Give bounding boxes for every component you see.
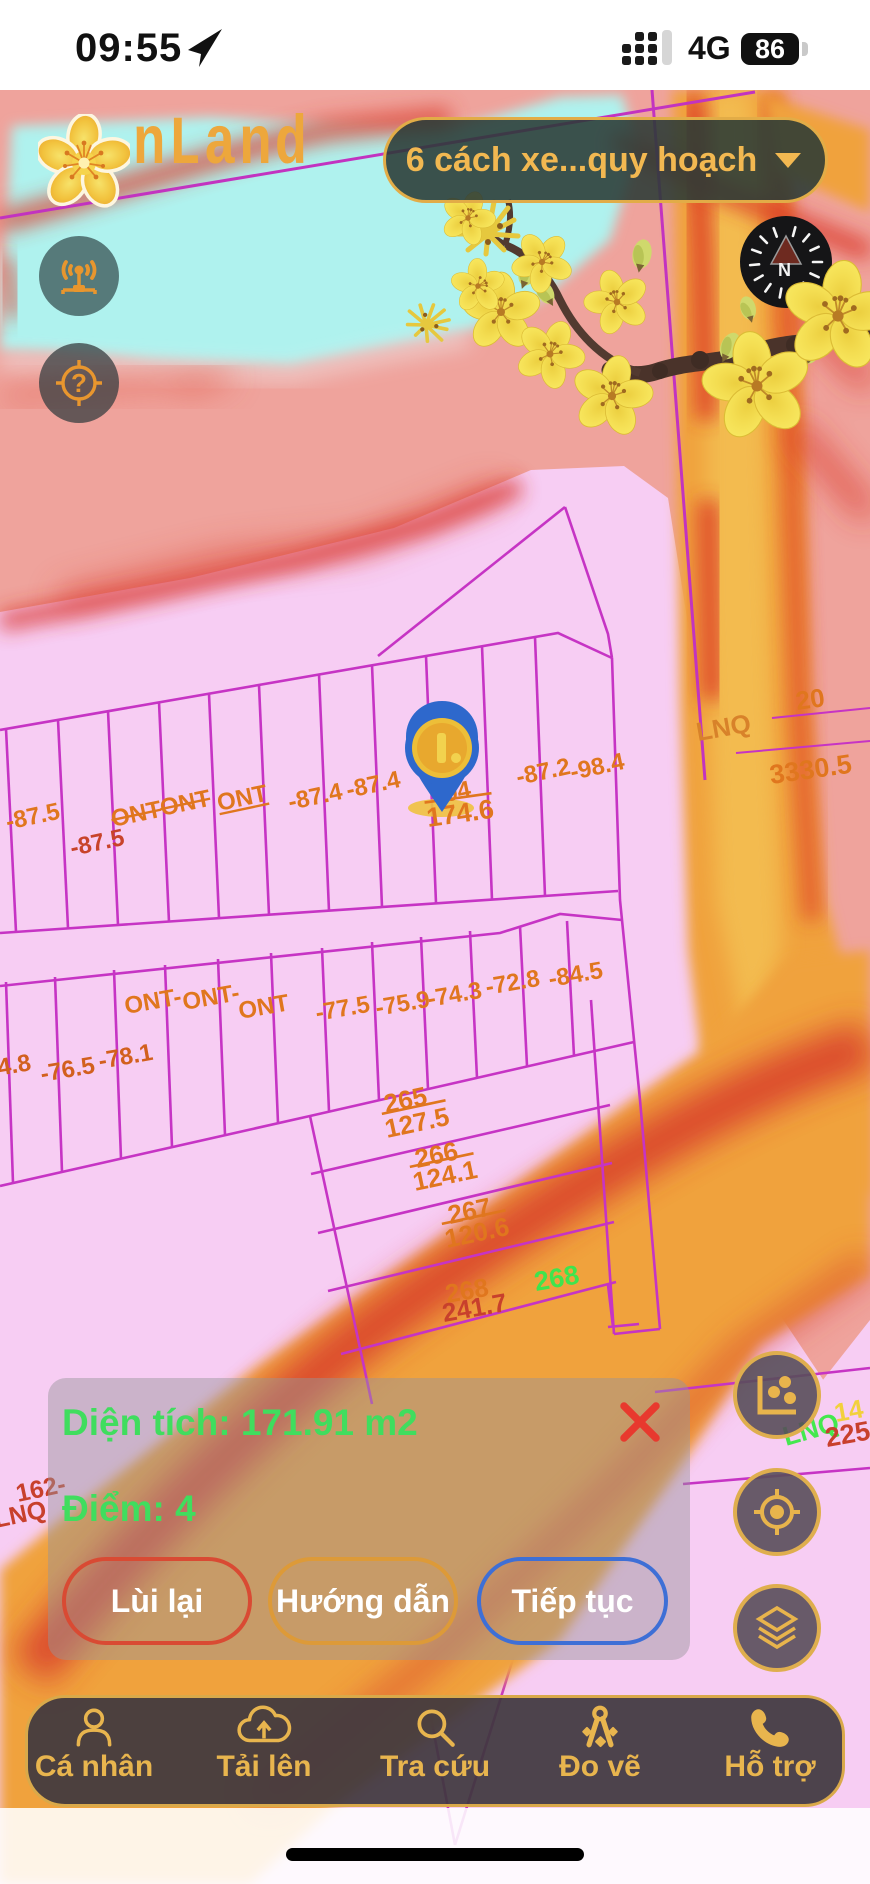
svg-text:N: N xyxy=(778,260,791,280)
svg-text:?: ? xyxy=(71,368,87,398)
svg-text:20: 20 xyxy=(794,682,827,716)
